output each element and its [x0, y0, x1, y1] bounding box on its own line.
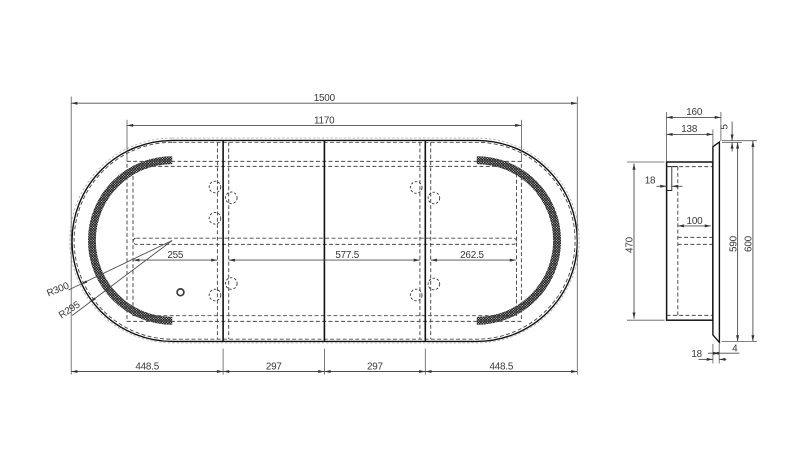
svg-text:262.5: 262.5: [460, 250, 484, 261]
svg-text:4: 4: [732, 343, 738, 354]
svg-text:255: 255: [167, 250, 184, 261]
svg-text:297: 297: [367, 361, 383, 372]
svg-text:448.5: 448.5: [135, 361, 159, 372]
svg-text:470: 470: [624, 236, 635, 253]
svg-text:18: 18: [691, 349, 702, 360]
svg-text:297: 297: [266, 361, 282, 372]
svg-text:138: 138: [681, 124, 698, 135]
svg-text:18: 18: [645, 176, 656, 187]
svg-text:1500: 1500: [314, 93, 336, 104]
svg-text:160: 160: [686, 107, 703, 118]
svg-text:1170: 1170: [314, 115, 335, 126]
svg-text:577.5: 577.5: [335, 250, 359, 261]
svg-text:590: 590: [728, 235, 739, 252]
svg-text:600: 600: [744, 235, 755, 252]
svg-text:5: 5: [720, 124, 731, 130]
svg-text:100: 100: [687, 216, 704, 227]
svg-text:448.5: 448.5: [489, 361, 513, 372]
